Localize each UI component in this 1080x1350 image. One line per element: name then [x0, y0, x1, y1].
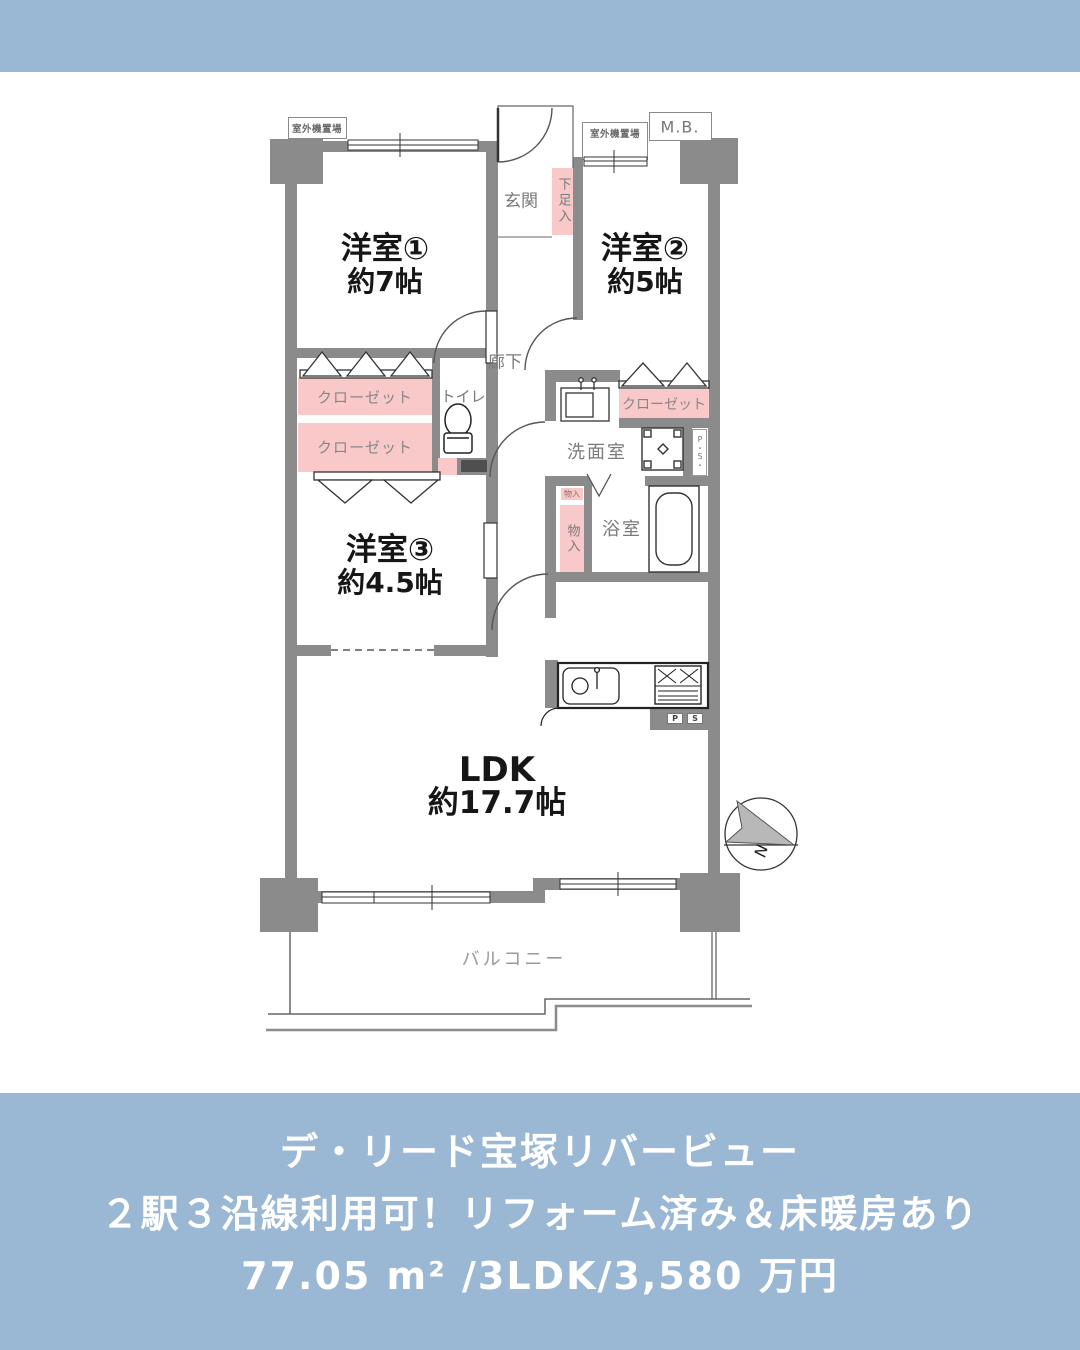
wall [285, 141, 297, 893]
washroom-sink [561, 378, 609, 421]
outdoor-unit-label-right: 室外機置場 [590, 126, 640, 140]
floor-plan-post: N 洋室① 約7帖 洋室② 約5帖 洋室③ 約4.5帖 LDK 約17.7帖 室… [0, 0, 1080, 1350]
wall [545, 477, 556, 618]
shoe-box-label: 下足入 [554, 177, 573, 225]
wall [486, 141, 498, 311]
toilet-corner-area [438, 458, 457, 475]
pipe-space-label: P・S・ [696, 435, 705, 469]
wall [680, 138, 738, 184]
wall [545, 370, 620, 382]
wall [545, 572, 720, 582]
wall [584, 486, 592, 576]
closet-label-2: クローゼット [317, 437, 413, 458]
wall [486, 578, 498, 657]
room-label-western3: 洋室③ 約4.5帖 [337, 533, 443, 599]
room-label-ldk: LDK 約17.7帖 [428, 753, 567, 819]
wall [533, 878, 545, 903]
closet-label-3: クローゼット [622, 394, 706, 414]
room-label-western1: 洋室① 約7帖 [341, 232, 429, 298]
wall [650, 708, 720, 730]
kitchen-ps-label-p: P [667, 713, 683, 724]
storage-small-label: 物入 [564, 489, 580, 500]
wall [297, 891, 545, 903]
wall [285, 348, 486, 358]
balcony-label: バルコニー [462, 945, 567, 971]
wall [545, 660, 558, 708]
wall [708, 184, 720, 873]
wall [619, 418, 709, 428]
wall [683, 428, 692, 476]
bathtub [649, 486, 699, 572]
wall [260, 878, 318, 932]
wall [486, 363, 498, 523]
door-leaf [484, 523, 497, 578]
catch-copy: ２駅３沿線利用可！リフォーム済み＆床暖房あり [101, 1183, 980, 1245]
wall [297, 645, 331, 656]
outdoor-unit-label-left: 室外機置場 [292, 121, 342, 135]
compass: N [724, 798, 798, 870]
closet-label-1: クローゼット [317, 387, 413, 408]
wall [432, 358, 440, 458]
wall [270, 141, 498, 152]
washing-machine [642, 428, 683, 470]
wall [545, 476, 600, 486]
wall [573, 157, 583, 320]
genkan-label: 玄関 [504, 187, 538, 212]
top-band [0, 0, 1080, 72]
hallway-label: 廊下 [488, 348, 522, 373]
washroom-label: 洗面室 [567, 438, 627, 464]
toilet-fixture [444, 404, 472, 453]
storage-label: 物入 [563, 524, 582, 554]
wall [680, 873, 740, 932]
compass-north-label: N [751, 843, 772, 860]
kitchen-ps-label-s: S [687, 713, 703, 724]
small-dark-label [461, 460, 487, 472]
building-name: デ・リード宝塚リバービュー [280, 1121, 800, 1183]
toilet-label: トイレ [440, 386, 485, 407]
room-label-western2: 洋室② 約5帖 [601, 232, 689, 298]
property-info-banner: デ・リード宝塚リバービュー ２駅３沿線利用可！リフォーム済み＆床暖房あり 77.… [0, 1093, 1080, 1350]
wall [545, 878, 680, 890]
property-spec: 77.05 m² /3LDK/3,580 万円 [241, 1245, 839, 1307]
wall [434, 645, 486, 656]
meter-box-label: M.B. [661, 118, 700, 137]
bathroom-label: 浴室 [602, 515, 642, 541]
